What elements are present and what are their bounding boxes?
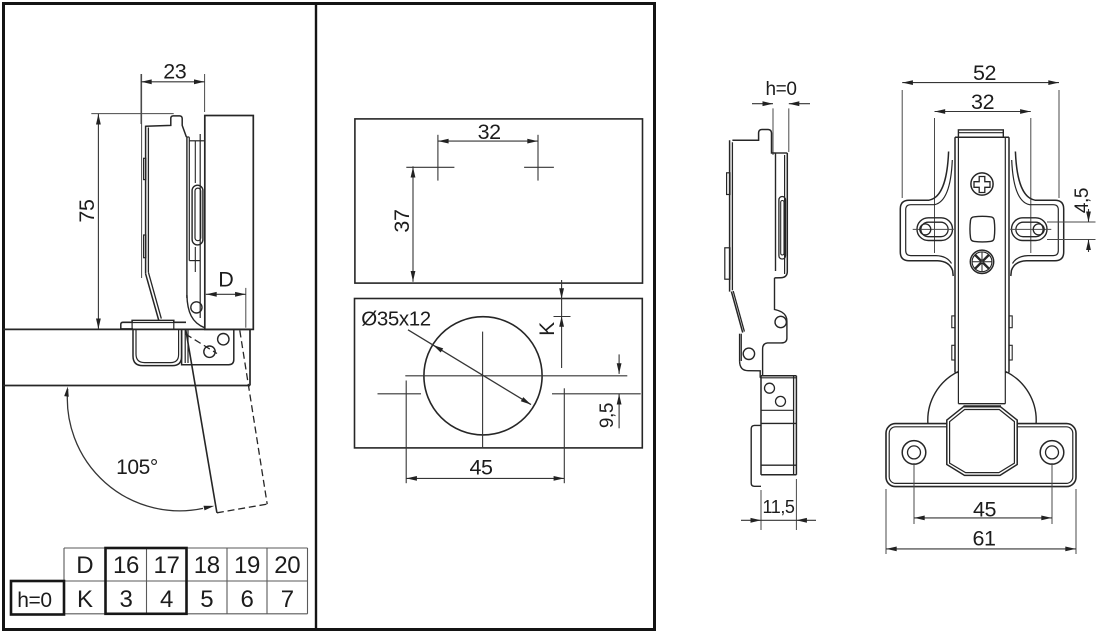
svg-text:52: 52 (973, 61, 996, 85)
svg-text:11,5: 11,5 (762, 497, 794, 517)
svg-text:4,5: 4,5 (1072, 188, 1093, 213)
svg-text:45: 45 (973, 497, 997, 521)
svg-text:6: 6 (241, 586, 254, 613)
svg-text:61: 61 (972, 526, 995, 550)
svg-text:17: 17 (154, 552, 180, 579)
svg-text:32: 32 (478, 120, 501, 144)
svg-text:9,5: 9,5 (597, 403, 618, 428)
svg-text:75: 75 (75, 199, 99, 223)
svg-text:105°: 105° (116, 456, 158, 479)
svg-text:5: 5 (200, 586, 213, 613)
svg-text:32: 32 (971, 90, 994, 114)
svg-text:19: 19 (234, 552, 260, 579)
svg-text:4: 4 (160, 586, 173, 613)
svg-text:16: 16 (113, 552, 139, 579)
svg-text:7: 7 (281, 586, 294, 613)
svg-text:D: D (76, 552, 93, 579)
svg-text:37: 37 (390, 209, 414, 232)
svg-text:45: 45 (469, 456, 493, 480)
svg-text:Ø35x12: Ø35x12 (361, 307, 430, 330)
svg-text:h=0: h=0 (17, 589, 51, 612)
svg-text:K: K (77, 586, 93, 613)
svg-text:D: D (218, 268, 233, 292)
svg-text:h=0: h=0 (765, 79, 796, 100)
svg-text:20: 20 (274, 552, 300, 579)
svg-text:18: 18 (194, 552, 220, 579)
svg-text:23: 23 (163, 59, 187, 83)
svg-text:3: 3 (120, 586, 133, 613)
svg-text:K: K (536, 322, 559, 336)
